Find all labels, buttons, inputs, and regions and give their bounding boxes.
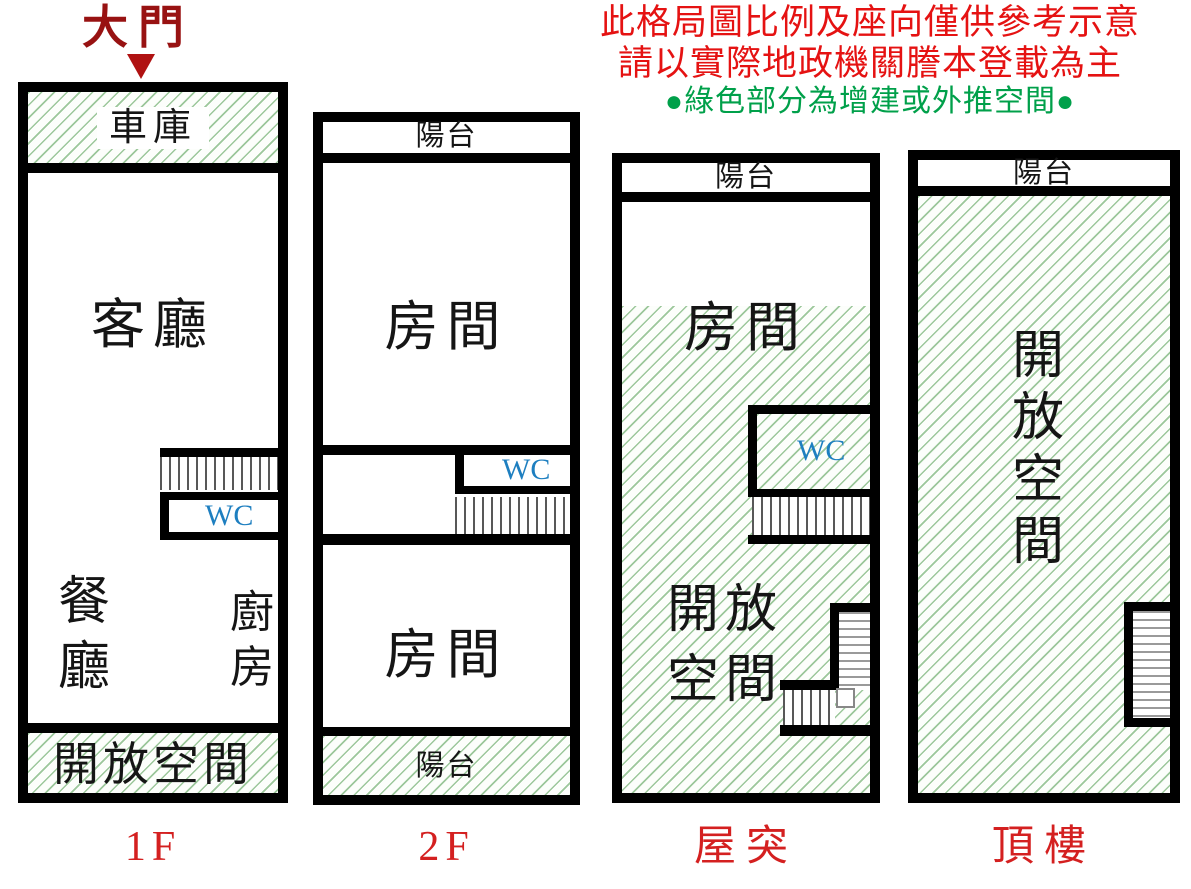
- wall-below-balcony-rooftop: [918, 186, 1170, 196]
- stairs-1f: [160, 448, 278, 490]
- wc-label-2f: WC: [502, 455, 550, 485]
- disclaimer-block: 此格局圖比例及座向僅供參考示意 請以實際地政機關謄本登載為主 ●綠色部分為增建或…: [590, 2, 1150, 119]
- stairs-vertical-wutu: [830, 603, 870, 690]
- garage-area: 車庫: [28, 92, 278, 163]
- room-upper-label-2f: 房間: [323, 282, 570, 361]
- balcony-bottom-label-2f: 陽台: [323, 752, 570, 781]
- wc-box-2f: WC: [455, 455, 570, 494]
- disclaimer-line-3: ●綠色部分為增建或外推空間●: [590, 84, 1150, 119]
- stairs-horizontal-wutu: [783, 690, 835, 727]
- floor-plan-rooftop: 陽台 開放空間: [908, 150, 1180, 803]
- wall-below-garage: [28, 163, 278, 173]
- room-lower-label-2f: 房間: [323, 610, 570, 689]
- floor-label-wutu: 屋突: [612, 824, 880, 870]
- stair-landing-box-wutu: [836, 688, 855, 708]
- floor-plan-2f: 陽台 房間 WC 房間 陽台: [313, 112, 580, 805]
- dining-room-label: 餐廳: [56, 570, 112, 700]
- wall-below-balcony-2f: [323, 153, 570, 163]
- floor-plan-1f: 車庫 客廳 WC 餐廳 廚房 開放空間: [18, 82, 288, 803]
- wc-box-wutu: WC: [748, 405, 870, 497]
- floor-label-2f: 2F: [313, 824, 580, 870]
- balcony-top-label-2f: 陽台: [323, 122, 570, 151]
- open-space-label-wutu: 開放空間: [666, 575, 784, 715]
- main-door-label: 大門: [82, 2, 194, 54]
- balcony-label-wutu: 陽台: [622, 163, 870, 192]
- balcony-top-area-2f: 陽台: [323, 122, 570, 153]
- main-door-arrow-icon: [127, 54, 155, 79]
- balcony-area-rooftop: 陽台: [918, 160, 1170, 186]
- wall-above-open-space-1f: [28, 723, 278, 733]
- balcony-label-rooftop: 陽台: [918, 159, 1170, 188]
- balcony-area-wutu: 陽台: [622, 163, 870, 192]
- stairs-upper-wutu: [752, 497, 870, 535]
- open-space-area-1f: 開放空間: [28, 733, 278, 793]
- floor-label-rooftop: 頂樓: [908, 824, 1180, 870]
- floor-label-1f: 1F: [18, 824, 288, 870]
- wc-box-1f: WC: [160, 492, 278, 540]
- room-label-wutu: 房間: [622, 283, 870, 362]
- open-space-label-1f: 開放空間: [28, 740, 278, 788]
- stairs-rooftop: [1124, 602, 1170, 727]
- floor-plan-canvas: 大門 此格局圖比例及座向僅供參考示意 請以實際地政機關謄本登載為主 ●綠色部分為…: [0, 0, 1191, 889]
- balcony-bottom-area-2f: 陽台: [323, 736, 570, 795]
- wall-below-stairs-2f: [323, 534, 570, 545]
- stair-landing-wall-wutu: [780, 680, 837, 690]
- disclaimer-line-1: 此格局圖比例及座向僅供參考示意: [590, 2, 1150, 43]
- garage-label: 車庫: [28, 108, 278, 148]
- wall-below-balcony-wutu: [622, 192, 870, 202]
- open-space-label-rooftop: 開放空間: [1010, 325, 1066, 573]
- wall-below-stairs-wutu: [748, 535, 870, 544]
- kitchen-label: 廚房: [228, 585, 276, 695]
- living-room-label: 客廳: [28, 280, 278, 359]
- wc-label-1f: WC: [205, 501, 253, 531]
- disclaimer-line-2: 請以實際地政機關謄本登載為主: [590, 43, 1150, 84]
- stairs-2f: [455, 497, 570, 534]
- wall-below-stairs-bottom-wutu: [780, 725, 875, 736]
- wc-label-wutu: WC: [797, 436, 845, 466]
- wall-above-balcony-bottom-2f: [323, 727, 570, 736]
- floor-plan-wutu: 陽台 房間 WC 開放空間: [612, 153, 880, 803]
